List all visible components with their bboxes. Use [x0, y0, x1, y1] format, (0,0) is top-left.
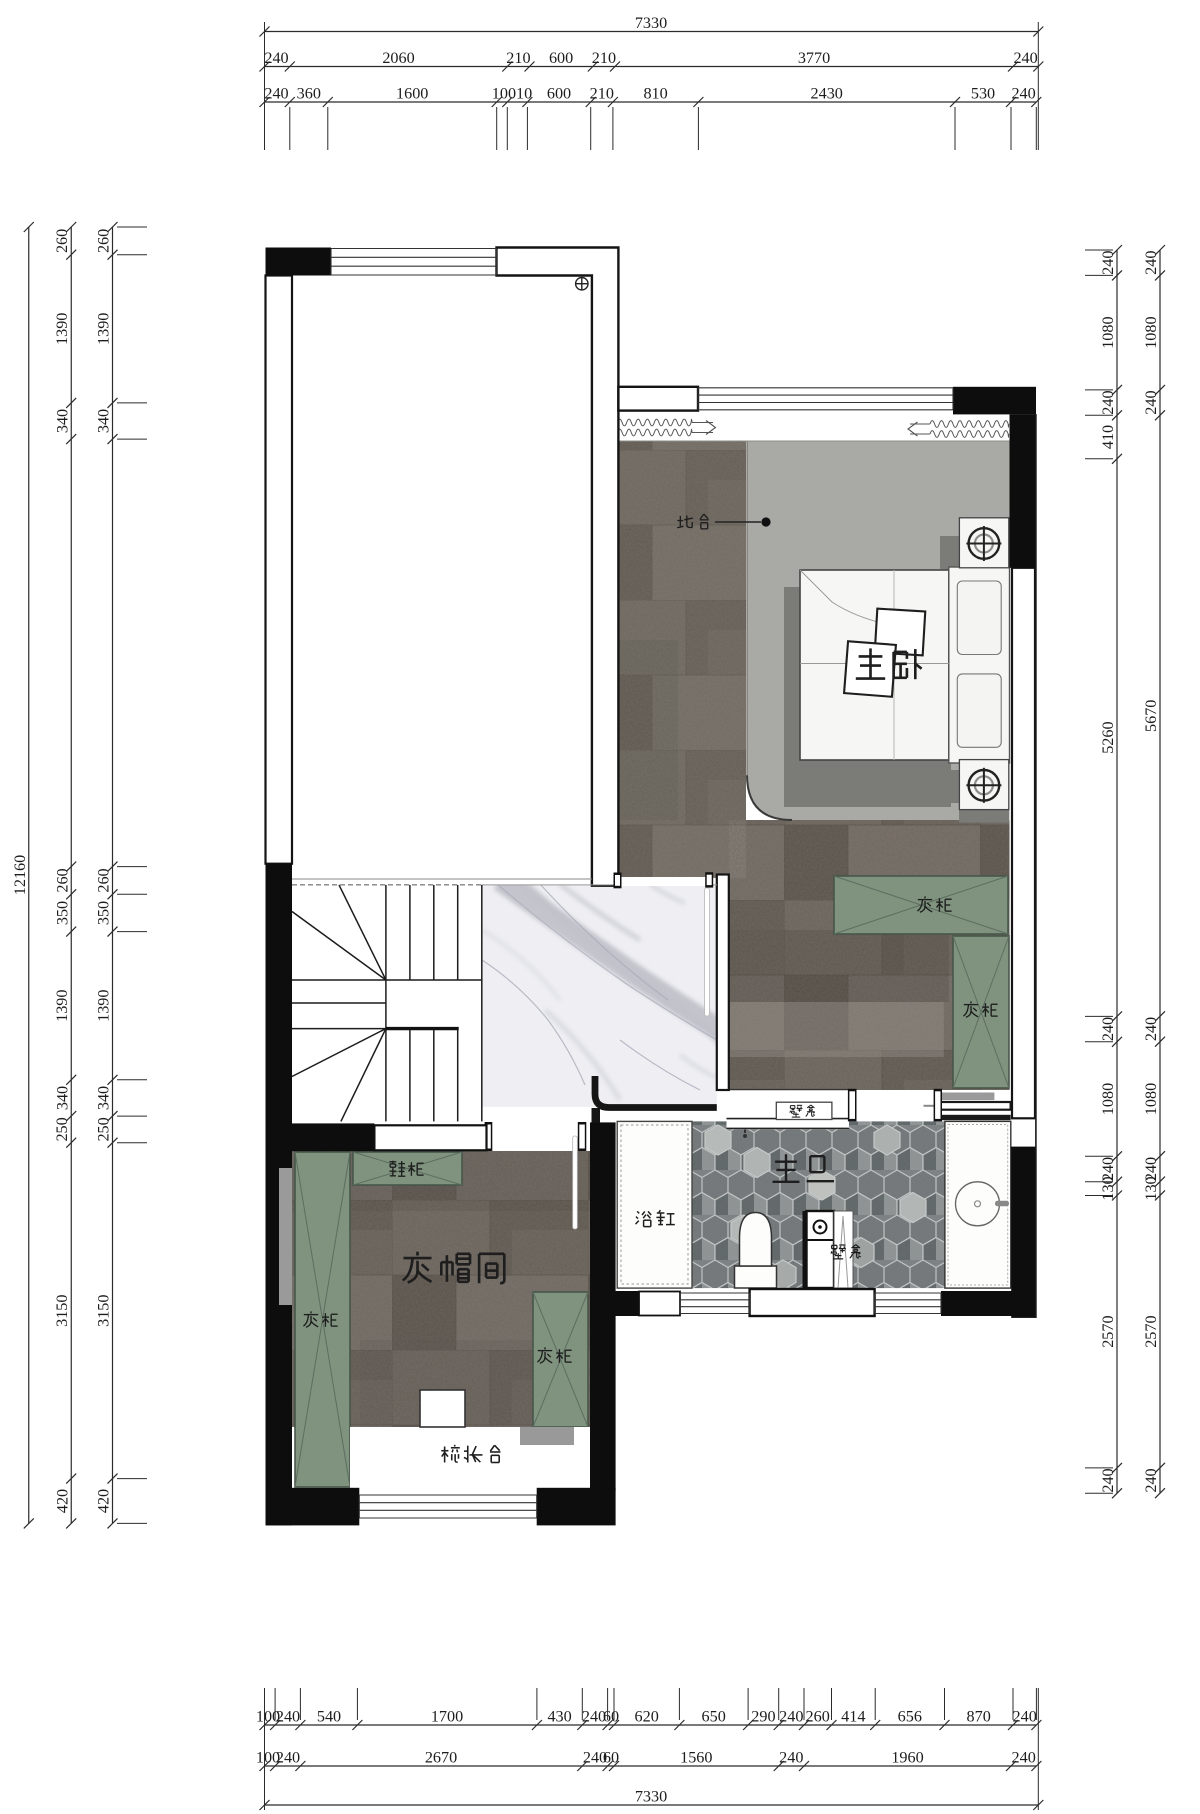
svg-text:340: 340 — [53, 409, 71, 433]
svg-text:60: 60 — [603, 1749, 619, 1767]
svg-text:1390: 1390 — [95, 313, 113, 345]
svg-text:240: 240 — [1142, 1468, 1160, 1492]
svg-text:290: 290 — [751, 1708, 775, 1726]
svg-text:130: 130 — [1142, 1176, 1160, 1200]
svg-text:600: 600 — [547, 85, 571, 103]
svg-text:250: 250 — [95, 1117, 113, 1141]
svg-text:1560: 1560 — [680, 1749, 712, 1767]
svg-text:130: 130 — [1099, 1176, 1117, 1200]
svg-text:12160: 12160 — [11, 855, 29, 895]
svg-text:650: 650 — [702, 1708, 726, 1726]
svg-text:1080: 1080 — [1142, 316, 1160, 348]
svg-text:3150: 3150 — [53, 1295, 71, 1327]
svg-text:240: 240 — [1142, 1017, 1160, 1041]
svg-text:870: 870 — [967, 1708, 991, 1726]
svg-text:60: 60 — [603, 1708, 619, 1726]
svg-text:10010: 10010 — [492, 85, 532, 103]
svg-text:210: 210 — [506, 49, 530, 67]
svg-text:1390: 1390 — [53, 990, 71, 1022]
svg-text:240: 240 — [1142, 390, 1160, 414]
svg-text:1600: 1600 — [396, 85, 428, 103]
svg-text:240: 240 — [1099, 390, 1117, 414]
svg-text:260: 260 — [53, 868, 71, 892]
svg-text:7330: 7330 — [635, 14, 667, 32]
svg-text:1080: 1080 — [1099, 1083, 1117, 1115]
svg-text:260: 260 — [53, 229, 71, 253]
svg-text:340: 340 — [53, 1086, 71, 1110]
svg-text:656: 656 — [898, 1708, 922, 1726]
svg-text:240: 240 — [779, 1749, 803, 1767]
svg-text:410: 410 — [1099, 425, 1117, 449]
svg-text:240: 240 — [779, 1708, 803, 1726]
svg-text:250: 250 — [53, 1117, 71, 1141]
svg-text:530: 530 — [971, 85, 995, 103]
svg-text:1960: 1960 — [891, 1749, 923, 1767]
svg-text:1080: 1080 — [1099, 316, 1117, 348]
svg-text:1700: 1700 — [431, 1708, 463, 1726]
svg-text:2670: 2670 — [425, 1749, 457, 1767]
svg-text:810: 810 — [643, 85, 667, 103]
svg-text:240: 240 — [1013, 49, 1037, 67]
svg-text:1390: 1390 — [53, 313, 71, 345]
svg-text:260: 260 — [95, 229, 113, 253]
svg-text:340: 340 — [95, 1086, 113, 1110]
svg-text:240: 240 — [1099, 251, 1117, 275]
svg-text:430: 430 — [547, 1708, 571, 1726]
svg-text:7330: 7330 — [635, 1788, 667, 1806]
svg-text:5260: 5260 — [1099, 721, 1117, 753]
svg-text:210: 210 — [592, 49, 616, 67]
svg-text:340: 340 — [95, 409, 113, 433]
svg-text:2570: 2570 — [1142, 1315, 1160, 1347]
svg-text:3770: 3770 — [798, 49, 830, 67]
svg-text:240: 240 — [264, 49, 288, 67]
svg-text:240: 240 — [1012, 1749, 1036, 1767]
svg-text:240: 240 — [276, 1708, 300, 1726]
svg-text:260: 260 — [95, 868, 113, 892]
svg-text:350: 350 — [95, 901, 113, 925]
svg-text:600: 600 — [549, 49, 573, 67]
svg-text:1390: 1390 — [95, 990, 113, 1022]
svg-text:620: 620 — [635, 1708, 659, 1726]
svg-text:240: 240 — [1013, 1708, 1037, 1726]
svg-text:240: 240 — [264, 85, 288, 103]
svg-text:260: 260 — [806, 1708, 830, 1726]
svg-text:414: 414 — [841, 1708, 865, 1726]
svg-text:2060: 2060 — [382, 49, 414, 67]
svg-text:2430: 2430 — [811, 85, 843, 103]
svg-text:240: 240 — [1142, 251, 1160, 275]
svg-text:240: 240 — [1099, 1468, 1117, 1492]
svg-text:360: 360 — [297, 85, 321, 103]
svg-text:2570: 2570 — [1099, 1315, 1117, 1347]
svg-text:210: 210 — [590, 85, 614, 103]
svg-text:240: 240 — [1099, 1017, 1117, 1041]
svg-text:420: 420 — [53, 1489, 71, 1513]
svg-text:240: 240 — [1011, 85, 1035, 103]
svg-text:5670: 5670 — [1142, 700, 1160, 732]
svg-text:3150: 3150 — [95, 1295, 113, 1327]
svg-text:540: 540 — [317, 1708, 341, 1726]
svg-text:240: 240 — [276, 1749, 300, 1767]
svg-text:420: 420 — [95, 1489, 113, 1513]
svg-text:350: 350 — [53, 901, 71, 925]
svg-text:1080: 1080 — [1142, 1083, 1160, 1115]
